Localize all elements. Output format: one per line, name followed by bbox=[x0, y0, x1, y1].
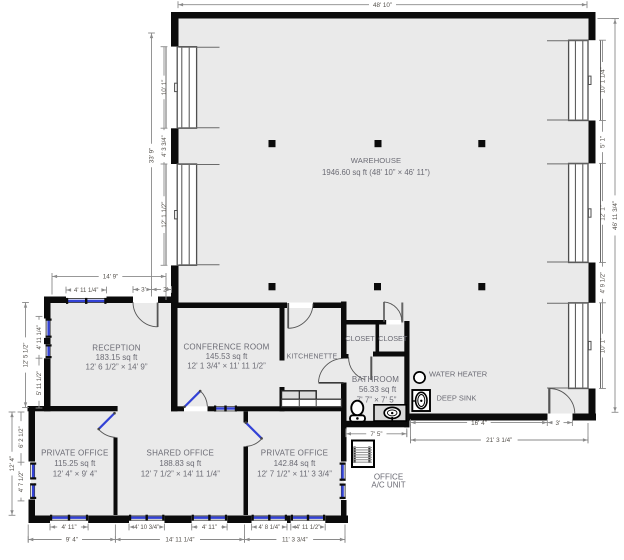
svg-text:4' 11 1/4”: 4' 11 1/4” bbox=[37, 325, 43, 349]
svg-text:6' 2 1/2”: 6' 2 1/2” bbox=[19, 426, 25, 448]
svg-text:46' 11 3/4”: 46' 11 3/4” bbox=[612, 201, 619, 230]
svg-text:7' 5”: 7' 5” bbox=[370, 431, 382, 438]
svg-text:9' 4”: 9' 4” bbox=[66, 537, 78, 544]
svg-text:PRIVATE OFFICE: PRIVATE OFFICE bbox=[41, 449, 108, 458]
svg-text:48' 10”: 48' 10” bbox=[373, 2, 392, 9]
svg-text:33' 9”: 33' 9” bbox=[149, 148, 156, 164]
svg-text:188.83 sq ft: 188.83 sq ft bbox=[159, 459, 202, 468]
svg-text:CLOSET: CLOSET bbox=[345, 334, 375, 343]
svg-text:KITCHENETTE: KITCHENETTE bbox=[287, 353, 338, 360]
svg-text:10' 1”: 10' 1” bbox=[600, 338, 607, 354]
svg-text:115.25 sq ft: 115.25 sq ft bbox=[54, 459, 96, 468]
svg-text:4' 9 1/2”: 4' 9 1/2” bbox=[601, 272, 607, 294]
svg-text:11' 3 3/4”: 11' 3 3/4” bbox=[282, 537, 308, 544]
svg-text:3': 3' bbox=[141, 287, 146, 294]
svg-text:3': 3' bbox=[555, 420, 560, 427]
svg-text:4' 11”: 4' 11” bbox=[61, 524, 76, 531]
svg-text:56.33 sq ft: 56.33 sq ft bbox=[359, 385, 397, 394]
svg-text:BATHROOM: BATHROOM bbox=[352, 375, 399, 384]
svg-text:4' 3 3/4”: 4' 3 3/4” bbox=[162, 135, 168, 157]
svg-text:DEEP SINK: DEEP SINK bbox=[437, 393, 477, 402]
svg-text:12' 5 1/2”: 12' 5 1/2” bbox=[24, 343, 30, 368]
svg-text:SHARED OFFICE: SHARED OFFICE bbox=[147, 449, 215, 458]
svg-text:145.53 sq ft: 145.53 sq ft bbox=[206, 352, 249, 361]
svg-text:CLOSET: CLOSET bbox=[378, 334, 408, 343]
svg-text:4' 11”: 4' 11” bbox=[202, 524, 217, 531]
svg-text:2': 2' bbox=[163, 287, 168, 294]
svg-text:5' 11 1/2”: 5' 11 1/2” bbox=[37, 371, 43, 395]
svg-text:12' 1”: 12' 1” bbox=[600, 205, 607, 221]
svg-text:WATER HEATER: WATER HEATER bbox=[429, 370, 488, 379]
svg-text:10' 1”: 10' 1” bbox=[161, 80, 168, 96]
svg-text:21' 3 1/4”: 21' 3 1/4” bbox=[486, 437, 512, 444]
svg-text:4' 11 1/4”: 4' 11 1/4” bbox=[74, 288, 98, 294]
svg-text:5' 1”: 5' 1” bbox=[600, 136, 607, 148]
svg-text:1946.60 sq ft (48' 10” × 46' 1: 1946.60 sq ft (48' 10” × 46' 11”) bbox=[322, 168, 430, 177]
svg-text:4' 11 1/2”: 4' 11 1/2” bbox=[296, 525, 320, 531]
svg-text:4' 10 3/4”: 4' 10 3/4” bbox=[134, 525, 159, 531]
svg-text:A/C UNIT: A/C UNIT bbox=[371, 480, 405, 489]
svg-text:142.84 sq ft: 142.84 sq ft bbox=[274, 459, 317, 468]
svg-text:4' 7 1/2”: 4' 7 1/2” bbox=[19, 471, 25, 493]
svg-text:12' 7 1/2” × 14' 11 1/4”: 12' 7 1/2” × 14' 11 1/4” bbox=[141, 470, 221, 479]
svg-text:12' 6 1/2” × 14' 9”: 12' 6 1/2” × 14' 9” bbox=[86, 363, 148, 372]
svg-text:WAREHOUSE: WAREHOUSE bbox=[351, 156, 401, 165]
svg-text:PRIVATE OFFICE: PRIVATE OFFICE bbox=[261, 449, 328, 458]
svg-text:12' 1 3/4” × 11' 11 1/2”: 12' 1 3/4” × 11' 11 1/2” bbox=[187, 362, 266, 371]
svg-text:12' 1 1/2”: 12' 1 1/2” bbox=[161, 202, 168, 228]
svg-text:RECEPTION: RECEPTION bbox=[92, 343, 140, 352]
svg-text:12' 7 1/2” × 11' 3 3/4”: 12' 7 1/2” × 11' 3 3/4” bbox=[257, 470, 332, 479]
svg-text:14' 11 1/4”: 14' 11 1/4” bbox=[165, 537, 194, 544]
svg-text:12' 4” × 9' 4”: 12' 4” × 9' 4” bbox=[53, 470, 98, 479]
svg-text:4' 8 1/4”: 4' 8 1/4” bbox=[259, 525, 281, 531]
svg-text:12' 4”: 12' 4” bbox=[9, 456, 16, 472]
svg-text:183.15 sq ft: 183.15 sq ft bbox=[96, 353, 139, 362]
svg-text:14' 9”: 14' 9” bbox=[103, 274, 119, 281]
svg-text:16' 4”: 16' 4” bbox=[471, 420, 487, 427]
svg-text:CONFERENCE ROOM: CONFERENCE ROOM bbox=[183, 342, 269, 351]
svg-text:10' 1 1/4”: 10' 1 1/4” bbox=[600, 67, 607, 93]
